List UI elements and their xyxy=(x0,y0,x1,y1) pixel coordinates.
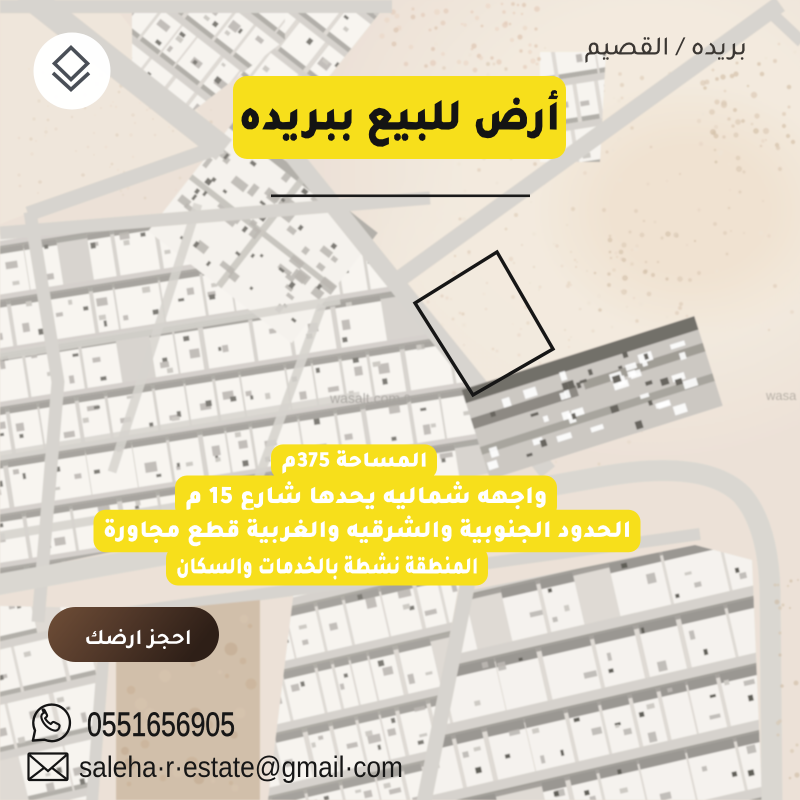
svg-text:saleha·r·estate@gmail·com: saleha·r·estate@gmail·com xyxy=(79,751,403,784)
svg-text:0551656905: 0551656905 xyxy=(87,706,235,744)
